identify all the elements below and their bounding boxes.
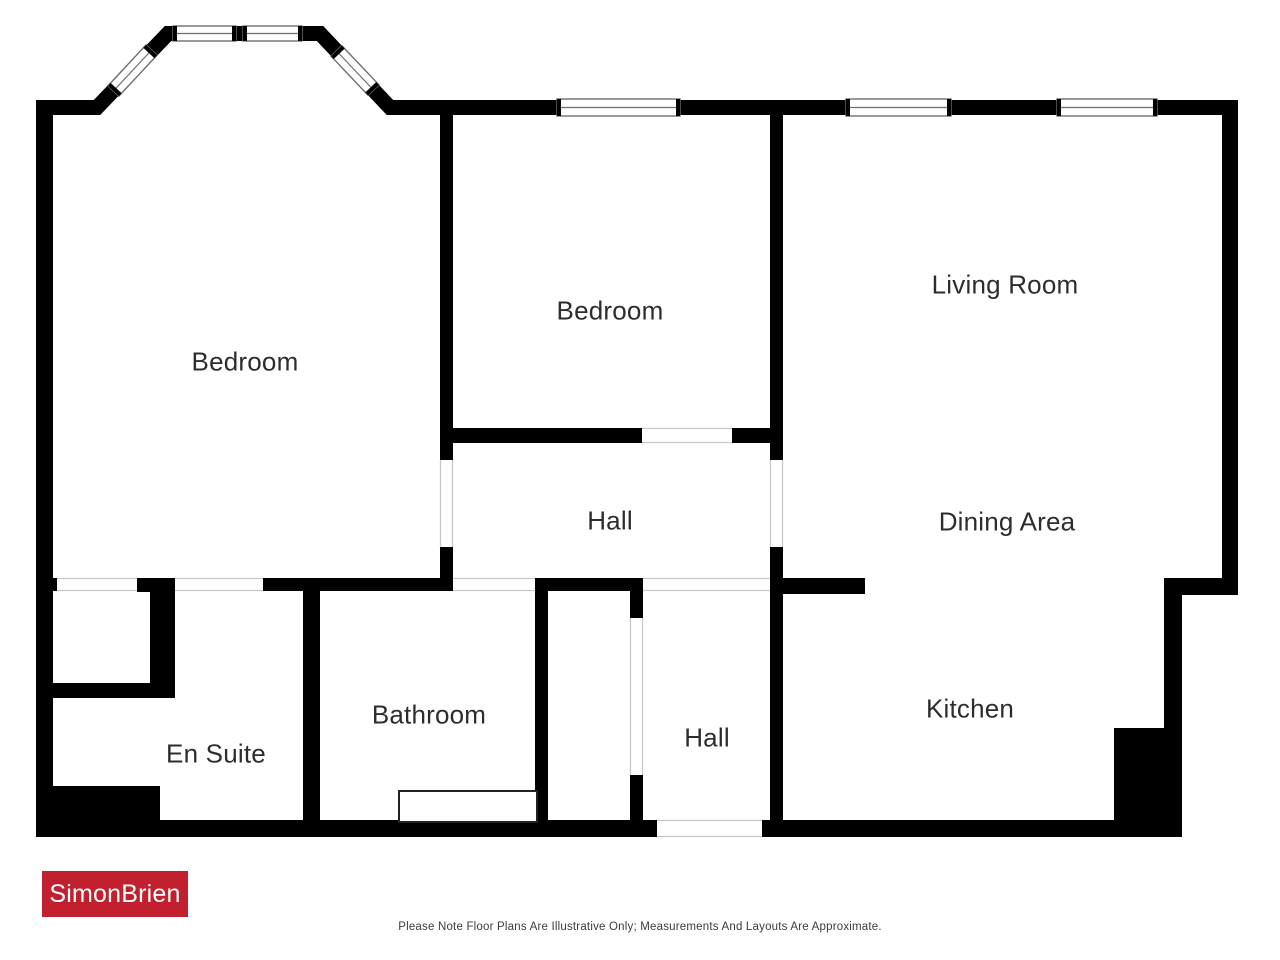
bay-window-angled-right-icon: [331, 46, 379, 96]
room-label-bedroom-left: Bedroom: [192, 347, 299, 378]
bedroom-window-icon: [557, 99, 680, 116]
agency-logo: SimonBrien: [42, 871, 188, 917]
bathtub-icon: [399, 791, 537, 822]
floor-plan-drawing: [0, 0, 1280, 960]
room-label-living-room: Living Room: [932, 270, 1079, 301]
disclaimer-text: Please Note Floor Plans Are Illustrative…: [398, 921, 882, 933]
bay-window-pane-left-icon: [173, 26, 236, 41]
room-label-dining-area: Dining Area: [939, 507, 1076, 538]
floor-plan-page: Bedroom Bedroom Living Room Hall Dining …: [0, 0, 1280, 960]
bay-window-pane-right-icon: [243, 26, 302, 41]
room-label-bedroom-middle: Bedroom: [557, 296, 664, 327]
living-room-window-left-icon: [846, 99, 951, 116]
room-label-hall-lower: Hall: [684, 723, 730, 754]
agency-logo-text: SimonBrien: [49, 880, 180, 909]
room-label-bathroom: Bathroom: [372, 700, 486, 731]
room-label-hall-upper: Hall: [587, 506, 633, 537]
room-label-en-suite: En Suite: [166, 739, 266, 770]
living-room-window-right-icon: [1057, 99, 1157, 116]
bay-window: [108, 26, 379, 96]
room-label-kitchen: Kitchen: [926, 694, 1014, 725]
bay-window-angled-left-icon: [108, 45, 157, 96]
